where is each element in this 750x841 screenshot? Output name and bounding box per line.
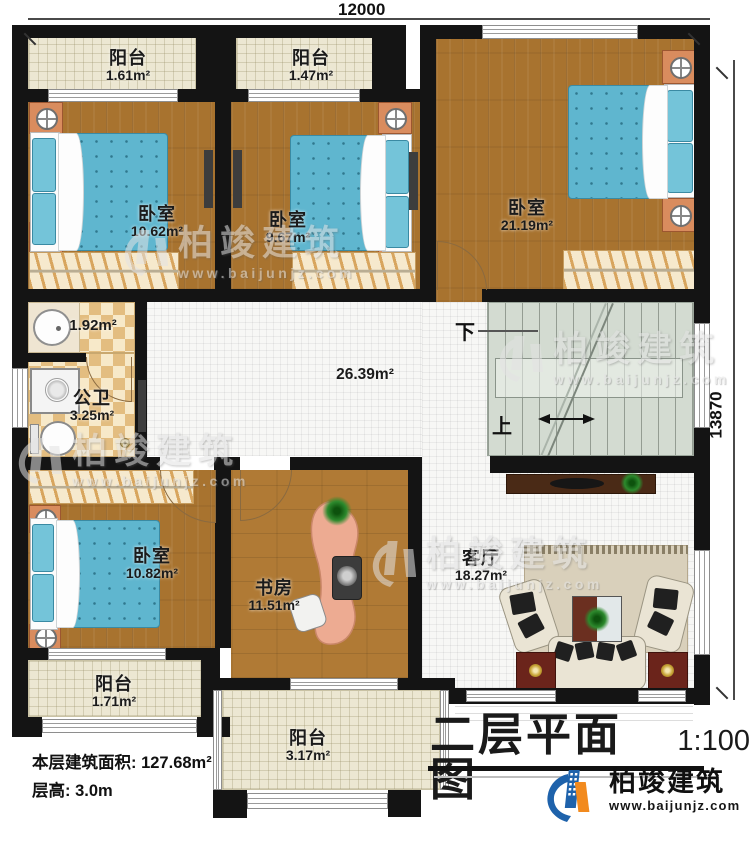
bed-sheet-fold [360, 135, 386, 251]
stair-landing [495, 358, 683, 398]
bed-sheet-fold [642, 85, 668, 199]
side-table [516, 652, 556, 690]
table-plant-icon [584, 606, 610, 632]
dimension-height: 13870 [707, 391, 727, 438]
stairs-up-label: 上 [492, 410, 512, 439]
balcony-railing [213, 690, 222, 790]
toilet-bowl-icon [40, 421, 76, 456]
cushion [509, 591, 536, 615]
balcony-railing [42, 719, 197, 733]
window [290, 678, 398, 690]
cushion [616, 640, 638, 662]
floor-height-text: 层高: 3.0m [32, 778, 113, 805]
floor-area-text: 本层建筑面积: 127.68m² [32, 750, 212, 777]
dimension-tick [716, 687, 729, 700]
stair-arrow-right [583, 414, 595, 424]
pillow [385, 140, 409, 194]
room-label-balcony-top-left: 阳台1.61m² [106, 48, 150, 84]
tv-icon [550, 478, 604, 489]
cushion [596, 642, 616, 662]
pillow [32, 524, 54, 572]
dimension-tick [716, 67, 729, 80]
company-url: www.baijunjz.com [609, 798, 740, 813]
wall-stairs-bottom [490, 456, 694, 473]
wall-bath-divider [28, 353, 86, 362]
door-opening-bedroom3 [436, 289, 482, 302]
nightstand [662, 198, 697, 232]
cushion [574, 640, 594, 660]
balconyBM-corner-right [388, 790, 421, 817]
window [482, 25, 638, 39]
sink-tap-icon [56, 326, 61, 331]
room-label-balcony-bottom-mid: 阳台3.17m² [286, 728, 330, 764]
stairs-down-label: 下 [455, 316, 475, 345]
wall-corridor-bottom-left [12, 457, 160, 470]
nightstand [378, 102, 412, 134]
room-label-bedroom-top-right: 卧室21.19m² [501, 198, 553, 234]
window [248, 89, 360, 102]
toilet-tank-icon [30, 424, 39, 454]
room-label-bedroom-bottom-left: 卧室10.82m² [126, 546, 178, 582]
pillow [32, 193, 56, 245]
wall-study-living [408, 457, 422, 690]
company-logo: 柏竣建筑 www.baijunjz.com [545, 768, 740, 824]
pillow [32, 574, 54, 622]
exterior-step-line [455, 706, 693, 707]
pillow [32, 138, 56, 192]
company-name: 柏竣建筑 [609, 768, 740, 798]
pillow [667, 143, 693, 193]
room-label-balcony-top-mid: 阳台1.47m² [289, 48, 333, 84]
dimension-width: 12000 [338, 0, 385, 20]
flower-icon [661, 664, 674, 677]
room-label-vanity: 1.92m² [69, 318, 117, 335]
stair-down-line [478, 330, 538, 332]
nightstand [29, 102, 63, 134]
wall-bedrooms-bottom [12, 289, 710, 302]
washing-machine-door-icon [45, 378, 69, 402]
cushion [517, 613, 545, 639]
floor-plan: 阳台1.61m² 阳台1.47m² 卧室10.62m² 卧室9.67m² 卧室2… [0, 0, 750, 841]
lamp-icon [36, 108, 58, 130]
pillow [667, 90, 693, 142]
pillow [385, 196, 409, 248]
lamp-icon [35, 627, 57, 649]
floor-drain-icon [120, 438, 130, 448]
lamp-icon [385, 108, 407, 130]
bed-sheet-fold [56, 520, 80, 628]
window [48, 648, 166, 660]
bed-sheet-fold [58, 133, 84, 251]
dimension-line-top [28, 18, 710, 20]
monitor-screen-icon [337, 566, 357, 586]
drawing-scale: 1:100 [677, 725, 750, 758]
cushion [553, 641, 574, 662]
room-label-balcony-bottom-left: 阳台1.71m² [92, 674, 136, 710]
lamp-icon [670, 205, 692, 227]
flower-icon [529, 664, 542, 677]
lamp-icon [670, 57, 692, 79]
side-table [648, 652, 688, 690]
rug-fringe [524, 545, 688, 554]
wardrobe [29, 252, 179, 290]
stair-arrow-line [549, 418, 583, 420]
dimension-line-right [733, 60, 735, 700]
room-label-study: 书房11.51m² [248, 578, 299, 614]
nightstand [662, 50, 697, 84]
company-logo-icon [545, 768, 599, 824]
desk-plant-icon [322, 496, 352, 526]
wall-bed1-bed2 [215, 100, 231, 290]
sink-icon [33, 309, 71, 346]
cushion [647, 611, 675, 637]
sofa [548, 636, 646, 690]
balconyBL-corner-left [12, 717, 42, 737]
room-label-bathroom: 公卫3.25m² [70, 388, 114, 424]
window [466, 690, 556, 702]
balconyBM-corner-left [213, 790, 247, 818]
room-label-hallway: 26.39m² [336, 366, 394, 383]
window [12, 368, 28, 428]
wardrobe [563, 250, 697, 290]
room-label-bedroom-top-mid: 卧室9.67m² [266, 210, 310, 246]
window [638, 690, 686, 702]
wall-bed2-bed3 [420, 25, 436, 302]
console-plant-icon [620, 472, 644, 494]
wall-bed4-study [215, 457, 231, 648]
door-leaf [138, 380, 146, 432]
window [694, 550, 710, 655]
door-leaf [204, 150, 213, 208]
door-leaf [409, 152, 418, 210]
window [48, 89, 178, 102]
cushion [653, 588, 679, 610]
room-label-bedroom-top-left: 卧室10.62m² [131, 204, 183, 240]
balcony-railing [247, 793, 388, 809]
wall-top-balconies [12, 25, 376, 38]
room-label-living: 客厅18.27m² [455, 548, 507, 584]
wardrobe [292, 252, 416, 290]
wall-corridor-bottom-right [290, 457, 420, 470]
door-leaf [233, 150, 242, 208]
balcony-bottom-mid-floor [222, 690, 440, 790]
